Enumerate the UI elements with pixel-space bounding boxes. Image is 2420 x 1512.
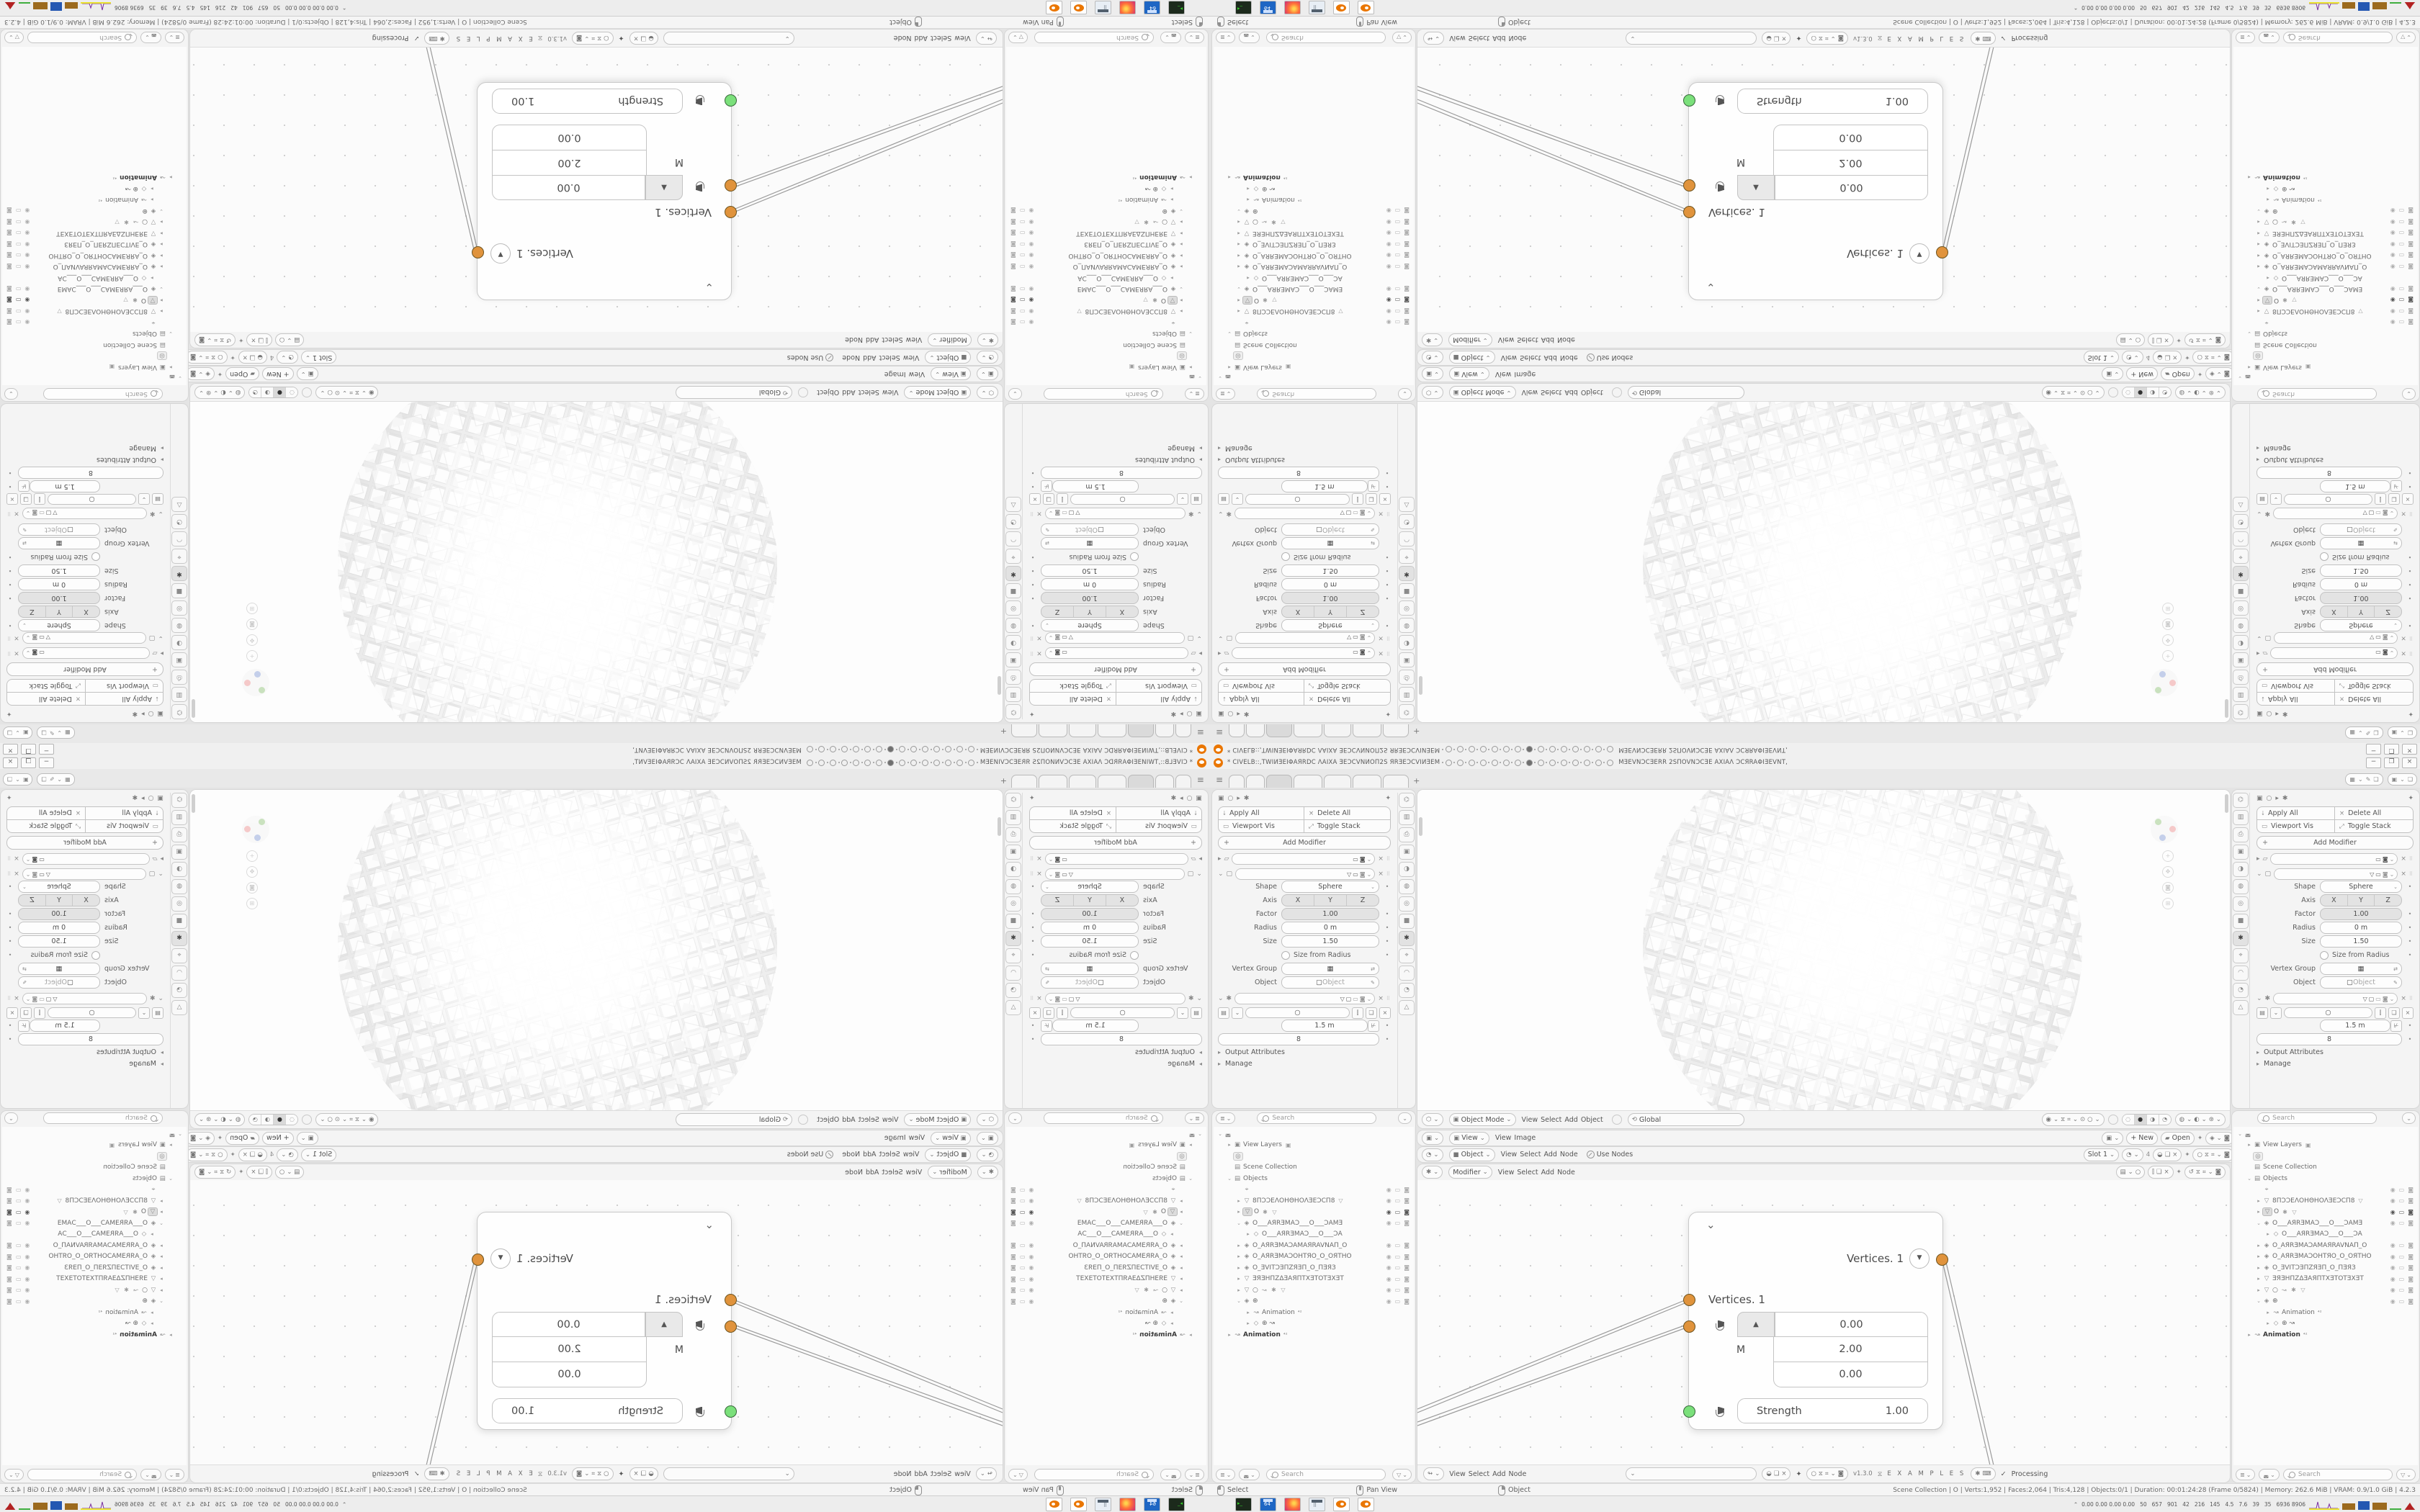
outliner-row[interactable]: ▸▣View Layers▣: [2, 1140, 187, 1151]
mode-dropdown[interactable]: ▣Object Mode⌄: [1449, 386, 1516, 399]
terminal-icon[interactable]: [1235, 1, 1252, 14]
outliner-row[interactable]: ▸▽○↝ ✱ ▽◉▭◙: [2233, 1284, 2418, 1296]
editor-type-dropdown[interactable]: ▣⌄: [977, 1132, 998, 1145]
outliner-row[interactable]: ▸◇⊕ ↝: [1006, 183, 1206, 194]
size-from-radius-checkbox[interactable]: Size from Radius: [30, 951, 100, 960]
outliner-row[interactable]: ⌄◛: [2233, 373, 2418, 384]
use-nodes-checkbox[interactable]: Use Nodes: [787, 1151, 834, 1158]
workspace-tab[interactable]: [1011, 775, 1037, 788]
pin-icon[interactable]: ✦: [6, 795, 12, 802]
user-count[interactable]: 4: [2146, 354, 2150, 361]
toggle-stack-button[interactable]: ⤢Toggle Stack: [1304, 820, 1391, 833]
properties-tab[interactable]: ◔: [1005, 514, 1021, 529]
properties-tab[interactable]: ⌖: [1005, 948, 1021, 963]
terminal-icon[interactable]: [1168, 1, 1185, 14]
search-input[interactable]: Search: [2283, 1469, 2393, 1480]
input-socket-2[interactable]: [1683, 179, 1695, 192]
render-filter-dropdown[interactable]: ◛⌄: [1239, 32, 1259, 43]
editor-type-dropdown[interactable]: ▣⌄: [977, 368, 998, 381]
workspace-tab[interactable]: [1098, 724, 1126, 737]
editor-type-dropdown[interactable]: ◔⌄: [1422, 1148, 1443, 1161]
number-field[interactable]: 1.50: [1041, 564, 1139, 577]
use-nodes-checkbox[interactable]: Use Nodes: [787, 354, 834, 361]
geonodes-right-icons[interactable]: ↺⧖⌗⌄◙: [194, 1166, 236, 1179]
properties-tab[interactable]: ⎙: [1399, 827, 1415, 842]
properties-tab[interactable]: ⌬: [1399, 793, 1415, 808]
menu-view[interactable]: View: [906, 1169, 923, 1176]
outliner-row[interactable]: ▸◈O_AЯRƎMAƆAMAЯRAVNAП_O◉▭◙: [1006, 261, 1206, 273]
input-socket-1[interactable]: [725, 1294, 737, 1306]
viewport-nav-buttons[interactable]: +✥ ◙⊞: [2162, 850, 2174, 909]
count-field[interactable]: 8: [1041, 1033, 1202, 1045]
vertex-group-field[interactable]: ▦⇄: [1041, 963, 1139, 975]
properties-tab[interactable]: ◠: [171, 531, 187, 546]
filter-dropdown[interactable]: ⌄: [2402, 388, 2416, 400]
properties-tab[interactable]: ⌬: [1005, 704, 1021, 719]
outliner-row[interactable]: ⌄◈O___AЯRƎMAƆ___O___ƆAMƎ◉▭◙: [1006, 284, 1206, 295]
menu-view[interactable]: View: [1522, 1116, 1538, 1124]
viewport-3d[interactable]: +✥ ◙⊞ ⬡⌄ ▣Object Mode⌄ ViewSelectAddObje…: [189, 789, 1003, 1129]
node-group-selector[interactable]: ▤⌄○: [2116, 333, 2146, 346]
section-output-attributes[interactable]: ▸Output Attributes: [6, 454, 163, 466]
shading-mode-button[interactable]: ◔: [249, 387, 261, 397]
outliner-row[interactable]: ▤Scene Collection: [1214, 339, 1414, 351]
step-up-button[interactable]: ▲: [645, 175, 683, 200]
properties-tab[interactable]: ▥: [171, 687, 187, 702]
properties-tab[interactable]: ⌬: [2233, 793, 2249, 808]
outliner-row[interactable]: ⌖◉▭◙: [1006, 1184, 1206, 1196]
axis-toggle-buttons[interactable]: XYZ: [1041, 606, 1139, 618]
properties-tab[interactable]: ▣: [1005, 845, 1021, 860]
outliner-row[interactable]: ▸◈O_AЯRƎMAƆAMAЯRAVNAП_O◉▭◙: [2233, 261, 2418, 273]
blender-app-icon[interactable]: [1333, 1498, 1350, 1511]
viewport-vis-button[interactable]: ▭Viewport Vis: [2257, 679, 2335, 692]
pin-icon[interactable]: ✦: [218, 371, 223, 378]
select-field[interactable]: Sphere⌄: [1281, 619, 1379, 631]
count-field[interactable]: 8: [1218, 1033, 1379, 1045]
select-field[interactable]: Sphere⌄: [2320, 619, 2402, 631]
vertex-group-field[interactable]: ▦⇄: [18, 963, 100, 975]
scrollbar-nub[interactable]: [2225, 699, 2228, 718]
menu-view[interactable]: View: [1501, 1151, 1518, 1158]
shader-type-dropdown[interactable]: ■Object⌄: [1449, 1148, 1495, 1161]
vertex-group-field[interactable]: ▦⇄: [1281, 537, 1379, 549]
section-manage[interactable]: ▸Manage: [1029, 443, 1202, 454]
field-toggle-icon[interactable]: [689, 1319, 705, 1331]
footer-right-icons[interactable]: ○⧖⌗⌄◙: [1806, 1467, 1848, 1480]
minimize-button[interactable]: −: [2366, 744, 2381, 755]
floppy-64-icon[interactable]: [1144, 1498, 1160, 1511]
apply-all-button[interactable]: ⭣Apply All: [1218, 692, 1304, 706]
outliner-row[interactable]: ⌄▤Objects: [2, 328, 187, 340]
properties-tab[interactable]: ▣: [171, 845, 187, 860]
menu-add[interactable]: Add: [863, 1151, 876, 1158]
funnel-filter-dropdown[interactable]: ▽⌄: [1008, 32, 1028, 43]
outliner-row[interactable]: ⌄◈O___AЯRƎMAƆ___O___ƆAMƎ◉▭◙: [1006, 1218, 1206, 1229]
menu-add[interactable]: Add: [1541, 336, 1554, 344]
properties-tab[interactable]: ◔: [1399, 514, 1415, 529]
shader-header-right-icons[interactable]: ○⧖⌗⌄◙: [2192, 351, 2234, 364]
search-input[interactable]: Search: [1034, 1469, 1154, 1480]
shader-field-tools[interactable]: ◒❏×: [2153, 351, 2182, 364]
outliner-row[interactable]: ▸↝Animation⁴²: [2233, 194, 2418, 206]
outliner-row[interactable]: ▸▽ƎЯƎHПZΔƎAЯПTXƎTOTƎXƎT◉▭◙: [2233, 1274, 2418, 1285]
number-field[interactable]: 0 m: [18, 578, 100, 590]
editor-type-dropdown[interactable]: ⬡⌄: [977, 386, 998, 399]
footer-field-tools[interactable]: ◒❏×: [629, 1467, 658, 1480]
workspace-tab[interactable]: [1039, 724, 1067, 737]
properties-tab[interactable]: ▣: [1399, 845, 1415, 860]
app-menu-icon[interactable]: ≡: [1216, 775, 1223, 785]
funnel-filter-dropdown[interactable]: ▽⌄: [1392, 32, 1412, 43]
delete-all-button[interactable]: ×Delete All: [1304, 692, 1391, 706]
minimize-button[interactable]: −: [39, 757, 54, 768]
outliner-row[interactable]: ▸◈O_ƎVITƆƎПZЯƎП_O_ПƎЯЗ◉▭◙: [2233, 239, 2418, 251]
outliner-row[interactable]: ▸◇⊕ ↝: [2233, 1318, 2418, 1330]
outliner-row[interactable]: ▸▽ƎЯƎHПZΔƎAЯПTXƎTOTƎXƎT◉▭◙: [1006, 228, 1206, 239]
outliner-row[interactable]: ⌄◛: [2233, 1128, 2418, 1140]
tray-caret[interactable]: ⌃: [342, 4, 346, 11]
outliner-row[interactable]: ▸▽○↝ ✱ ▽◉▭◙: [1214, 1284, 1414, 1296]
outliner-row[interactable]: ▤Scene Collection: [2233, 339, 2418, 351]
modifier-header[interactable]: ⌄▢▽▭◙⌄×⠿: [6, 868, 163, 880]
display-mode-dropdown[interactable]: ≣⌄: [1185, 1469, 1204, 1480]
outliner-row[interactable]: ▸◇O___AЯRƎMAƆ___O___ƆA: [1214, 272, 1414, 284]
toggle-stack-button[interactable]: ⤢Toggle Stack: [6, 679, 85, 692]
shading-mode-button[interactable]: ◔: [2159, 1115, 2171, 1125]
apply-all-button[interactable]: ⭣Apply All: [2257, 692, 2335, 706]
workspace-tab[interactable]: [1069, 775, 1096, 788]
outliner-row[interactable]: ▸◈O_AЯRƎMAƆOHTЯO_O_OЯTHO◉▭◙: [1006, 250, 1206, 261]
search-input[interactable]: Search: [1034, 32, 1154, 43]
funnel-filter-dropdown[interactable]: ▽⌄: [2396, 32, 2416, 43]
menu-add[interactable]: Add: [1564, 389, 1577, 397]
workspace-tab[interactable]: [1128, 775, 1154, 788]
geometry-node[interactable]: ⌄ Vertices. 1 ▼ Vertices. 1 ▲ 0.00: [1688, 1212, 1943, 1430]
shading-mode-button[interactable]: ●: [2135, 1115, 2147, 1125]
new-image-button[interactable]: + New: [262, 368, 294, 381]
workspace-tab[interactable]: [1266, 724, 1292, 737]
geonodes-field-tools[interactable]: ⫿❏×: [246, 333, 272, 346]
shading-mode-button[interactable]: ◌: [285, 1115, 297, 1125]
outliner-row[interactable]: ▸◈O_AЯRƎMAƆOHTЯO_O_OЯTHO◉▭◙: [1214, 250, 1414, 261]
image-selector[interactable]: ▣⌄: [2102, 368, 2123, 381]
properties-tab[interactable]: ⎙: [171, 827, 187, 842]
outliner-row[interactable]: ⌖◉▭◙: [1214, 317, 1414, 328]
open-image-button[interactable]: ▰Open: [2161, 1132, 2195, 1145]
length-field[interactable]: 1.5 m: [30, 480, 100, 492]
editor-type-dropdown[interactable]: ◔⌄: [977, 351, 998, 364]
new-image-button[interactable]: + New: [262, 1132, 294, 1145]
outliner-row[interactable]: ⌄◈⊕◉▭◙: [1006, 205, 1206, 217]
blender-app-icon[interactable]: [1358, 1, 1374, 14]
properties-tab[interactable]: △: [1399, 1000, 1415, 1015]
scrollbar-nub[interactable]: [192, 794, 195, 813]
image-header-right-icons[interactable]: ◈⌄◙: [2205, 368, 2234, 381]
field-toggle-icon[interactable]: [1715, 1405, 1731, 1417]
size-from-radius-checkbox[interactable]: Size from Radius: [1069, 553, 1139, 562]
menu-add[interactable]: Add: [1564, 1116, 1577, 1124]
pin-icon[interactable]: ✦: [619, 35, 624, 42]
select-field[interactable]: Sphere⌄: [1041, 881, 1139, 893]
examples-button[interactable]: E X A M P L E S: [1887, 35, 1966, 42]
outliner-row[interactable]: ▤Scene Collection: [1006, 1162, 1206, 1174]
outliner-row[interactable]: ▸↝Animation⁴²: [2, 172, 187, 184]
properties-tab[interactable]: ◎: [171, 896, 187, 912]
properties-tab[interactable]: ✱: [1399, 566, 1415, 581]
properties-tab[interactable]: ⎙: [2233, 670, 2249, 685]
scrollbar-nub[interactable]: [2225, 794, 2228, 813]
pin-icon[interactable]: ✦: [2184, 1151, 2190, 1158]
outliner-row[interactable]: ▸↝Animation⁴²: [1006, 1329, 1206, 1341]
output-socket[interactable]: [472, 1254, 484, 1266]
axis-toggle-buttons[interactable]: XYZ: [1041, 894, 1139, 906]
outliner-row[interactable]: ▸◈O_ƎVITƆƎПZЯƎП_O_ПƎЯЗ◉▭◙: [1006, 239, 1206, 251]
outliner-row[interactable]: ▸▽8ПƆƆEΛOHΘHOΛƎEƆCП8▽◉▭◙: [1214, 1195, 1414, 1207]
properties-tab[interactable]: △: [1005, 497, 1021, 512]
workspace-tab[interactable]: [1324, 775, 1351, 788]
properties-tab[interactable]: ◑: [171, 635, 187, 650]
search-input[interactable]: Search: [1257, 1112, 1376, 1124]
input-socket-2[interactable]: [1683, 1320, 1695, 1333]
menu-add[interactable]: Add: [863, 354, 876, 361]
shading-mode-button[interactable]: ◔: [249, 1115, 261, 1125]
firefox-icon[interactable]: [1119, 1, 1136, 14]
menu-select[interactable]: Select: [1541, 389, 1561, 397]
delete-all-button[interactable]: ×Delete All: [1029, 692, 1116, 706]
properties-tab[interactable]: ◔: [171, 983, 187, 998]
outliner-row[interactable]: ▸▽8ПƆƆEΛOHΘHOΛƎEƆCП8▽◉▭◙: [2, 306, 187, 318]
menu-select[interactable]: Select: [1469, 35, 1489, 42]
menu-select[interactable]: Select: [931, 35, 951, 42]
menu-node[interactable]: Node: [842, 1151, 860, 1158]
filter-mode-dropdown[interactable]: ≣⌄: [1185, 1112, 1204, 1124]
workspace-tab[interactable]: [1246, 775, 1265, 788]
floppy-64-icon[interactable]: [1260, 1, 1276, 14]
search-input[interactable]: Search: [43, 388, 163, 400]
modifier-header[interactable]: ▸▱▭◙⌄×⠿: [1029, 853, 1202, 865]
viewport-canvas[interactable]: +✥ ◙⊞: [190, 401, 1003, 722]
modifier-header[interactable]: ⌄✱▽▢▭◙⌄×⠿: [2257, 993, 2414, 1004]
outliner-row[interactable]: ▸◇O___AЯRƎMAƆ___O___ƆA: [1006, 1229, 1206, 1241]
menu-select[interactable]: Select: [859, 1116, 879, 1124]
menu-node[interactable]: Node: [1560, 1151, 1578, 1158]
outliner-row[interactable]: ▸▽○↝ ✱ ▽◉▭◙: [2, 1284, 187, 1296]
object-field[interactable]: ▢Object✎: [2320, 523, 2402, 536]
menu-add[interactable]: Add: [1492, 35, 1505, 42]
outliner-row[interactable]: ▸◈O_AЯRƎMAƆOHTЯO_O_OЯTHO◉▭◙: [1214, 1251, 1414, 1263]
image-header-right-icons[interactable]: ◈⌄◙: [186, 1132, 215, 1145]
tray-caret[interactable]: ⌃: [342, 1501, 346, 1508]
field-toggle-icon[interactable]: [1715, 1319, 1731, 1331]
add-modifier-button[interactable]: +Add Modifier: [2257, 662, 2414, 676]
outliner-row[interactable]: ▸↝Animation⁴²: [1214, 172, 1414, 184]
axis-toggle-buttons[interactable]: XYZ: [18, 894, 100, 906]
modifier-header[interactable]: ⌄✱▽▢▭◙⌄×⠿: [1218, 508, 1391, 519]
shading-mode-button[interactable]: ◌: [2123, 387, 2135, 397]
properties-tab[interactable]: ◔: [2233, 983, 2249, 998]
filter-dropdown[interactable]: ⌄: [1008, 1112, 1022, 1124]
user-count[interactable]: 4: [270, 1151, 274, 1158]
object-field[interactable]: ▢Object✎: [1041, 523, 1139, 536]
outliner-row[interactable]: ▤Scene Collection: [2, 1162, 187, 1174]
modifier-header[interactable]: ⌄▢▽▭◙⌄×⠿: [6, 632, 163, 644]
number-field[interactable]: 1.50: [18, 935, 100, 948]
apply-all-button[interactable]: ⭣Apply All: [1116, 692, 1202, 706]
vector-x-field[interactable]: 0.00: [492, 175, 645, 200]
section-manage[interactable]: ▸Manage: [2257, 1058, 2414, 1069]
app-menu-icon[interactable]: ≡: [1197, 727, 1204, 737]
properties-tab[interactable]: ◠: [1005, 966, 1021, 981]
outliner-row[interactable]: ⌄◛: [1214, 1128, 1414, 1140]
toolbar-nub[interactable]: [1419, 817, 1422, 836]
menu-select[interactable]: Select: [859, 389, 879, 397]
menu-node[interactable]: Node: [1560, 354, 1578, 361]
vertex-group-field[interactable]: ▦⇄: [18, 537, 100, 549]
shader-type-dropdown[interactable]: ■Object⌄: [925, 1148, 971, 1161]
pin-icon[interactable]: ✦: [1796, 1470, 1801, 1478]
outliner-row[interactable]: ▸◈O_AЯRƎMAƆOHTЯO_O_OЯTHO◉▭◙: [2233, 1251, 2418, 1263]
mode-dropdown[interactable]: ▣Object Mode⌄: [1449, 1113, 1516, 1126]
menu-select[interactable]: Select: [1517, 1169, 1538, 1176]
shader-field-tools[interactable]: ◒❏×: [238, 351, 267, 364]
add-modifier-button[interactable]: +Add Modifier: [1218, 662, 1391, 676]
menu-node[interactable]: Node: [894, 1470, 912, 1478]
properties-tab[interactable]: ◔: [2233, 514, 2249, 529]
filter-dropdown[interactable]: ⌄: [1008, 388, 1022, 400]
shading-mode-button[interactable]: ◌: [2123, 1115, 2135, 1125]
geonodes-right-icons[interactable]: ↺⧖⌗⌄◙: [194, 333, 236, 346]
filter-dropdown[interactable]: ⌄: [1398, 388, 1412, 400]
outliner-row[interactable]: ▤Scene Collection: [2, 339, 187, 351]
outliner-row[interactable]: ◎: [1214, 1151, 1414, 1162]
apply-all-button[interactable]: ⭣Apply All: [2257, 806, 2335, 820]
toggle-stack-button[interactable]: ⤢Toggle Stack: [1029, 820, 1116, 833]
outliner-row[interactable]: ▸◈O_AЯRƎMAƆAMAЯRAVNAП_O◉▭◙: [2233, 1240, 2418, 1251]
close-button[interactable]: ×: [3, 744, 18, 755]
firefox-icon[interactable]: [1284, 1498, 1301, 1511]
strength-socket[interactable]: [725, 94, 737, 107]
outliner-row[interactable]: ▸◈O_AЯRƎMAƆOHTЯO_O_OЯTHO◉▭◙: [2, 1251, 187, 1263]
outliner-row[interactable]: ▸▽O✱ ▽◉▭◙: [1214, 294, 1414, 306]
orientation-dropdown[interactable]: ⟲Global: [1628, 1113, 1744, 1126]
outliner-row[interactable]: ⌄◈O___AЯRƎMAƆ___O___ƆAMƎ◉▭◙: [2233, 1218, 2418, 1229]
orientation-dropdown[interactable]: ⟲Global: [676, 386, 792, 399]
size-from-radius-checkbox[interactable]: Size from Radius: [2320, 553, 2390, 562]
material-selector[interactable]: ◔⌄: [277, 351, 298, 364]
funnel-filter-dropdown[interactable]: ▽⌄: [1008, 1469, 1028, 1480]
workspace-tab[interactable]: [1294, 775, 1322, 788]
properties-tab[interactable]: ■: [2233, 583, 2249, 598]
menu-object[interactable]: Object: [1581, 1116, 1603, 1124]
viewport-vis-button[interactable]: ▭Viewport Vis: [2257, 820, 2335, 833]
outliner-row[interactable]: ▸▣View Layers▣: [2, 361, 187, 373]
funnel-filter-dropdown[interactable]: ▽⌄: [1392, 1469, 1412, 1480]
menu-node[interactable]: Node: [842, 354, 860, 361]
outliner-row[interactable]: ▸↝Animation⁴²: [1006, 172, 1206, 184]
modifier-header[interactable]: ⌄✱▽▢▭◙⌄×⠿: [1029, 508, 1202, 519]
output-socket[interactable]: [1936, 246, 1948, 258]
image-selector[interactable]: ▣⌄: [297, 1132, 318, 1145]
vector-z-field[interactable]: 0.00: [492, 1362, 647, 1387]
modifier-header[interactable]: ⌄▢▽▭◙⌄×⠿: [2257, 632, 2414, 644]
select-field[interactable]: Sphere⌄: [1281, 881, 1379, 893]
shading-mode-button[interactable]: ◔: [2159, 387, 2171, 397]
outliner-row[interactable]: ▸◈O_AЯRƎMAƆAMAЯRAVNAП_O◉▭◙: [1006, 1240, 1206, 1251]
close-button[interactable]: ×: [2402, 744, 2417, 755]
add-modifier-button[interactable]: +Add Modifier: [1029, 662, 1202, 676]
output-menu-button[interactable]: ▼: [1909, 243, 1930, 264]
select-field[interactable]: Sphere⌄: [1041, 619, 1139, 631]
use-nodes-checkbox[interactable]: Use Nodes: [1587, 354, 1633, 361]
outliner-row[interactable]: ▸◈O_AЯRƎMAƆAMAЯRAVNAП_O◉▭◙: [2, 261, 187, 273]
viewlayer-selector[interactable]: ▣⌄❏: [2388, 726, 2417, 739]
firefox-icon[interactable]: [1284, 1, 1301, 14]
floppy-64-icon[interactable]: [1260, 1498, 1276, 1511]
axis-toggle-buttons[interactable]: XYZ: [2320, 894, 2402, 906]
section-manage[interactable]: ▸Manage: [2257, 443, 2414, 454]
properties-tab[interactable]: ◔: [171, 514, 187, 529]
pin-icon[interactable]: ✦: [2184, 354, 2190, 361]
outliner-row[interactable]: ▸▽O✱ ▽◉▭◙: [2233, 294, 2418, 306]
menu-add[interactable]: Add: [1492, 1470, 1505, 1478]
menu-node[interactable]: Node: [845, 1169, 863, 1176]
outliner-row[interactable]: ▸↝Animation⁴²: [2, 194, 187, 206]
blender-app-icon[interactable]: [1046, 1498, 1062, 1511]
properties-tab[interactable]: ◑: [1005, 635, 1021, 650]
section-output-attributes[interactable]: ▸Output Attributes: [2257, 454, 2414, 466]
node-group-selector[interactable]: ▤⌄○: [275, 333, 305, 346]
outliner-row[interactable]: ◎: [1214, 351, 1414, 362]
outliner-row[interactable]: ▸▽ƎЯƎHПZΔƎAЯПTXƎTOTƎXƎT◉▭◙: [1006, 1274, 1206, 1285]
modifier-header[interactable]: ⌄✱▽▢▭◙⌄×⠿: [1218, 993, 1391, 1004]
node-group-row[interactable]: ▤⌄○⫿❏×: [1218, 493, 1391, 505]
close-button[interactable]: ×: [3, 757, 18, 768]
axis-toggle-buttons[interactable]: XYZ: [1281, 894, 1379, 906]
workspace-tab[interactable]: [1011, 724, 1037, 737]
outliner-row[interactable]: ▸◈O_ƎVITƆƎПZЯƎП_O_ПƎЯЗ◉▭◙: [2233, 1262, 2418, 1274]
menu-node[interactable]: Node: [845, 336, 863, 344]
outliner-row[interactable]: ▤Scene Collection: [1006, 339, 1206, 351]
length-field[interactable]: 1.5 m: [1281, 1020, 1368, 1032]
outliner-row[interactable]: ◎: [1006, 1151, 1206, 1162]
add-modifier-button[interactable]: +Add Modifier: [1218, 836, 1391, 850]
properties-tab[interactable]: ◍: [2233, 618, 2249, 633]
outliner-row[interactable]: ◎: [2, 1151, 187, 1162]
outliner-row[interactable]: ▸◇⊕ ↝: [1214, 1318, 1414, 1330]
properties-tab[interactable]: ⌬: [2233, 704, 2249, 719]
input-socket-2[interactable]: [725, 179, 737, 192]
outliner-row[interactable]: ▸◈O_ƎVITƆƎПZЯƎП_O_ПƎЯЗ◉▭◙: [1006, 1262, 1206, 1274]
number-field[interactable]: 0 m: [1281, 578, 1379, 590]
geometry-node[interactable]: ⌄ Vertices. 1 ▼ Vertices. 1 ▲ 0.00: [477, 1212, 732, 1430]
count-field[interactable]: 8: [1041, 467, 1202, 479]
properties-tab[interactable]: ◑: [2233, 635, 2249, 650]
modifier-header[interactable]: ⌄▢▽▭◙⌄×⠿: [1029, 868, 1202, 880]
section-manage[interactable]: ▸Manage: [6, 443, 163, 454]
pin-icon[interactable]: ✦: [218, 1135, 223, 1142]
properties-tab[interactable]: ⎙: [1005, 827, 1021, 842]
toolbar-nub[interactable]: [1419, 676, 1422, 695]
node-group-field[interactable]: ⌄: [1626, 1467, 1757, 1480]
filter-dropdown[interactable]: ⌄: [4, 1112, 18, 1124]
object-field[interactable]: ▢Object✎: [1281, 523, 1379, 536]
pin-icon[interactable]: ✦: [1796, 35, 1801, 42]
shading-mode-button[interactable]: ◑: [2147, 1115, 2159, 1125]
viewport-3d[interactable]: +✥ ◙⊞ ⬡⌄ ▣Object Mode⌄ ViewSelectAddObje…: [189, 383, 1003, 723]
outliner-row[interactable]: ⌄◛: [1006, 1128, 1206, 1140]
outliner-row[interactable]: ⌖◉▭◙: [1006, 317, 1206, 328]
